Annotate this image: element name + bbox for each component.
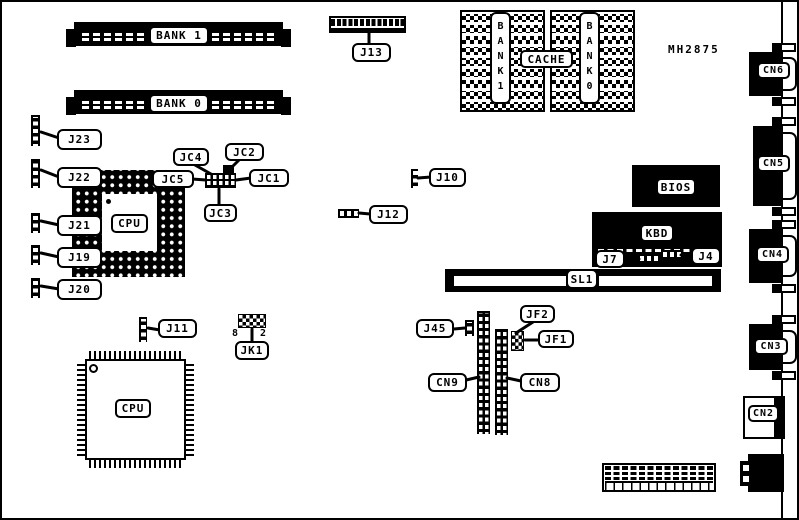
qfp-pin1-circle — [89, 364, 98, 373]
jumper-block-jk1 — [238, 314, 266, 328]
j4-text: J4 — [698, 250, 713, 263]
mounting-tab — [773, 43, 782, 52]
qfp-pins-right — [186, 363, 194, 456]
callout-j19: J19 — [57, 247, 102, 268]
cache-bank1-text: BANK1 — [495, 21, 506, 96]
pin-header-j22 — [31, 159, 40, 188]
jumper-block-jf — [511, 331, 524, 351]
simm-label-bank0: BANK 0 — [149, 94, 209, 113]
cn4-label: CN4 — [756, 246, 789, 263]
callout-j13: J13 — [352, 43, 391, 62]
motherboard-diagram: BANK 1 BANK 0 J13 BANK1 BANK0 CACHE MH28… — [0, 0, 799, 520]
pin-header-j10 — [411, 169, 418, 188]
cn2-text: CN2 — [753, 408, 774, 419]
callout-jf1: JF1 — [538, 330, 574, 348]
callout-j23: J23 — [57, 129, 102, 150]
cn6-label: CN6 — [757, 62, 790, 79]
pin-header-j45 — [465, 320, 474, 336]
jf1-text: JF1 — [545, 333, 568, 346]
jc5-text: JC5 — [162, 173, 185, 186]
callout-j7: J7 — [595, 250, 625, 268]
terminal-strip-dashes — [605, 477, 713, 480]
j13-text: J13 — [360, 46, 383, 59]
j22-text: J22 — [68, 171, 91, 184]
bank1-text: BANK 1 — [156, 29, 202, 42]
cpu-qfp-text: CPU — [122, 402, 145, 415]
jumper-block-jc — [205, 173, 236, 188]
pin-header-j21 — [31, 213, 40, 233]
simm-clip — [66, 97, 76, 115]
jc4-text: JC4 — [180, 151, 203, 164]
callout-jf2: JF2 — [520, 305, 555, 323]
simm-contacts — [82, 33, 148, 41]
j11-text: J11 — [166, 322, 189, 335]
bank0-text: BANK 0 — [156, 97, 202, 110]
cpu-pga-label: CPU — [111, 214, 148, 233]
callout-j21: J21 — [57, 215, 102, 236]
pin-header-j20 — [31, 278, 40, 298]
mounting-tab — [773, 371, 782, 380]
jumper-j4 — [661, 250, 682, 259]
j7-text: J7 — [602, 253, 617, 266]
pin-header-j11 — [139, 317, 147, 342]
jk1-text: JK1 — [241, 344, 264, 357]
callout-sl1: SL1 — [566, 269, 598, 289]
bios-text: BIOS — [661, 181, 692, 194]
sl1-text: SL1 — [571, 273, 594, 286]
kbd-text: KBD — [646, 227, 669, 240]
cn5-label: CN5 — [757, 155, 790, 172]
kbd-label: KBD — [640, 224, 674, 242]
jc1-text: JC1 — [258, 172, 281, 185]
callout-j22: J22 — [57, 167, 102, 188]
mounting-tab — [773, 315, 782, 324]
cpu-pga-text: CPU — [118, 217, 141, 230]
j20-text: J20 — [68, 283, 91, 296]
mounting-tab — [773, 207, 782, 216]
callout-jc1: JC1 — [249, 169, 289, 187]
callout-j12: J12 — [369, 205, 408, 224]
simm-contacts — [212, 101, 276, 109]
header-cn8 — [495, 329, 508, 435]
j12-text: J12 — [377, 208, 400, 221]
cache-label: CACHE — [520, 50, 573, 68]
jk1-pin2-label: 2 — [260, 328, 266, 339]
cn3-label: CN3 — [754, 338, 788, 355]
j45-text: J45 — [424, 322, 447, 335]
sl1-slot-key — [454, 276, 566, 286]
j23-text: J23 — [68, 133, 91, 146]
din-connector — [748, 454, 784, 492]
pin-header-j12 — [338, 209, 359, 218]
jumper-j7 — [638, 254, 659, 263]
callout-j10: J10 — [429, 168, 466, 187]
board-part-number: MH2875 — [668, 43, 720, 56]
jk1-pin8-label: 8 — [232, 328, 238, 339]
simm-contacts — [212, 33, 276, 41]
cpu-qfp-label: CPU — [115, 399, 151, 418]
bios-label: BIOS — [656, 178, 696, 196]
j21-text: J21 — [68, 219, 91, 232]
j10-text: J10 — [436, 171, 459, 184]
qfp-pins-top — [89, 351, 182, 359]
jc3-text: JC3 — [209, 207, 232, 220]
cn8-text: CN8 — [529, 376, 552, 389]
callout-jc2: JC2 — [225, 143, 264, 161]
simm-clip — [66, 29, 76, 47]
callout-j4: J4 — [691, 247, 721, 265]
cn2-label: CN2 — [748, 405, 779, 422]
cn4-text: CN4 — [762, 249, 783, 260]
cn3-text: CN3 — [760, 341, 781, 352]
terminal-strip-squares — [605, 481, 713, 490]
header-cn9 — [477, 311, 490, 434]
pin1-dot — [106, 199, 111, 204]
mounting-tab — [773, 284, 782, 293]
mounting-tab — [773, 220, 782, 229]
mounting-tab — [773, 117, 782, 126]
mounting-tab — [773, 97, 782, 106]
simm-clip — [281, 97, 291, 115]
callout-cn8: CN8 — [520, 373, 560, 392]
callout-j11: J11 — [158, 319, 197, 338]
cache-text: CACHE — [527, 53, 565, 66]
sl1-slot-key — [599, 276, 712, 286]
cn9-text: CN9 — [436, 376, 459, 389]
callout-jc4: JC4 — [173, 148, 209, 166]
simm-label-bank1: BANK 1 — [149, 26, 209, 45]
callout-cn9: CN9 — [428, 373, 467, 392]
jf2-text: JF2 — [526, 308, 549, 321]
callout-jk1: JK1 — [235, 341, 269, 360]
qfp-pins-left — [77, 363, 85, 456]
cn5-text: CN5 — [763, 158, 784, 169]
j19-text: J19 — [68, 251, 91, 264]
cache-bank0-label: BANK0 — [579, 12, 600, 104]
jc2-text: JC2 — [233, 146, 256, 159]
jumper-jc2-cap — [223, 165, 234, 173]
simm-contacts — [82, 101, 148, 109]
simm-clip — [281, 29, 291, 47]
callout-j20: J20 — [57, 279, 102, 300]
callout-jc3: JC3 — [204, 204, 237, 222]
connector-j13 — [329, 16, 406, 33]
cache-bank1-label: BANK1 — [490, 12, 511, 104]
cn6-text: CN6 — [763, 65, 784, 76]
pin-header-j23 — [31, 115, 40, 146]
terminal-strip-screws — [605, 466, 713, 475]
pin-header-j19 — [31, 245, 40, 265]
callout-jc5: JC5 — [152, 170, 194, 188]
callout-j45: J45 — [416, 319, 454, 338]
qfp-pins-bottom — [89, 460, 182, 468]
cache-bank0-text: BANK0 — [584, 21, 595, 96]
din-pin — [742, 475, 750, 483]
din-pin — [742, 464, 750, 472]
